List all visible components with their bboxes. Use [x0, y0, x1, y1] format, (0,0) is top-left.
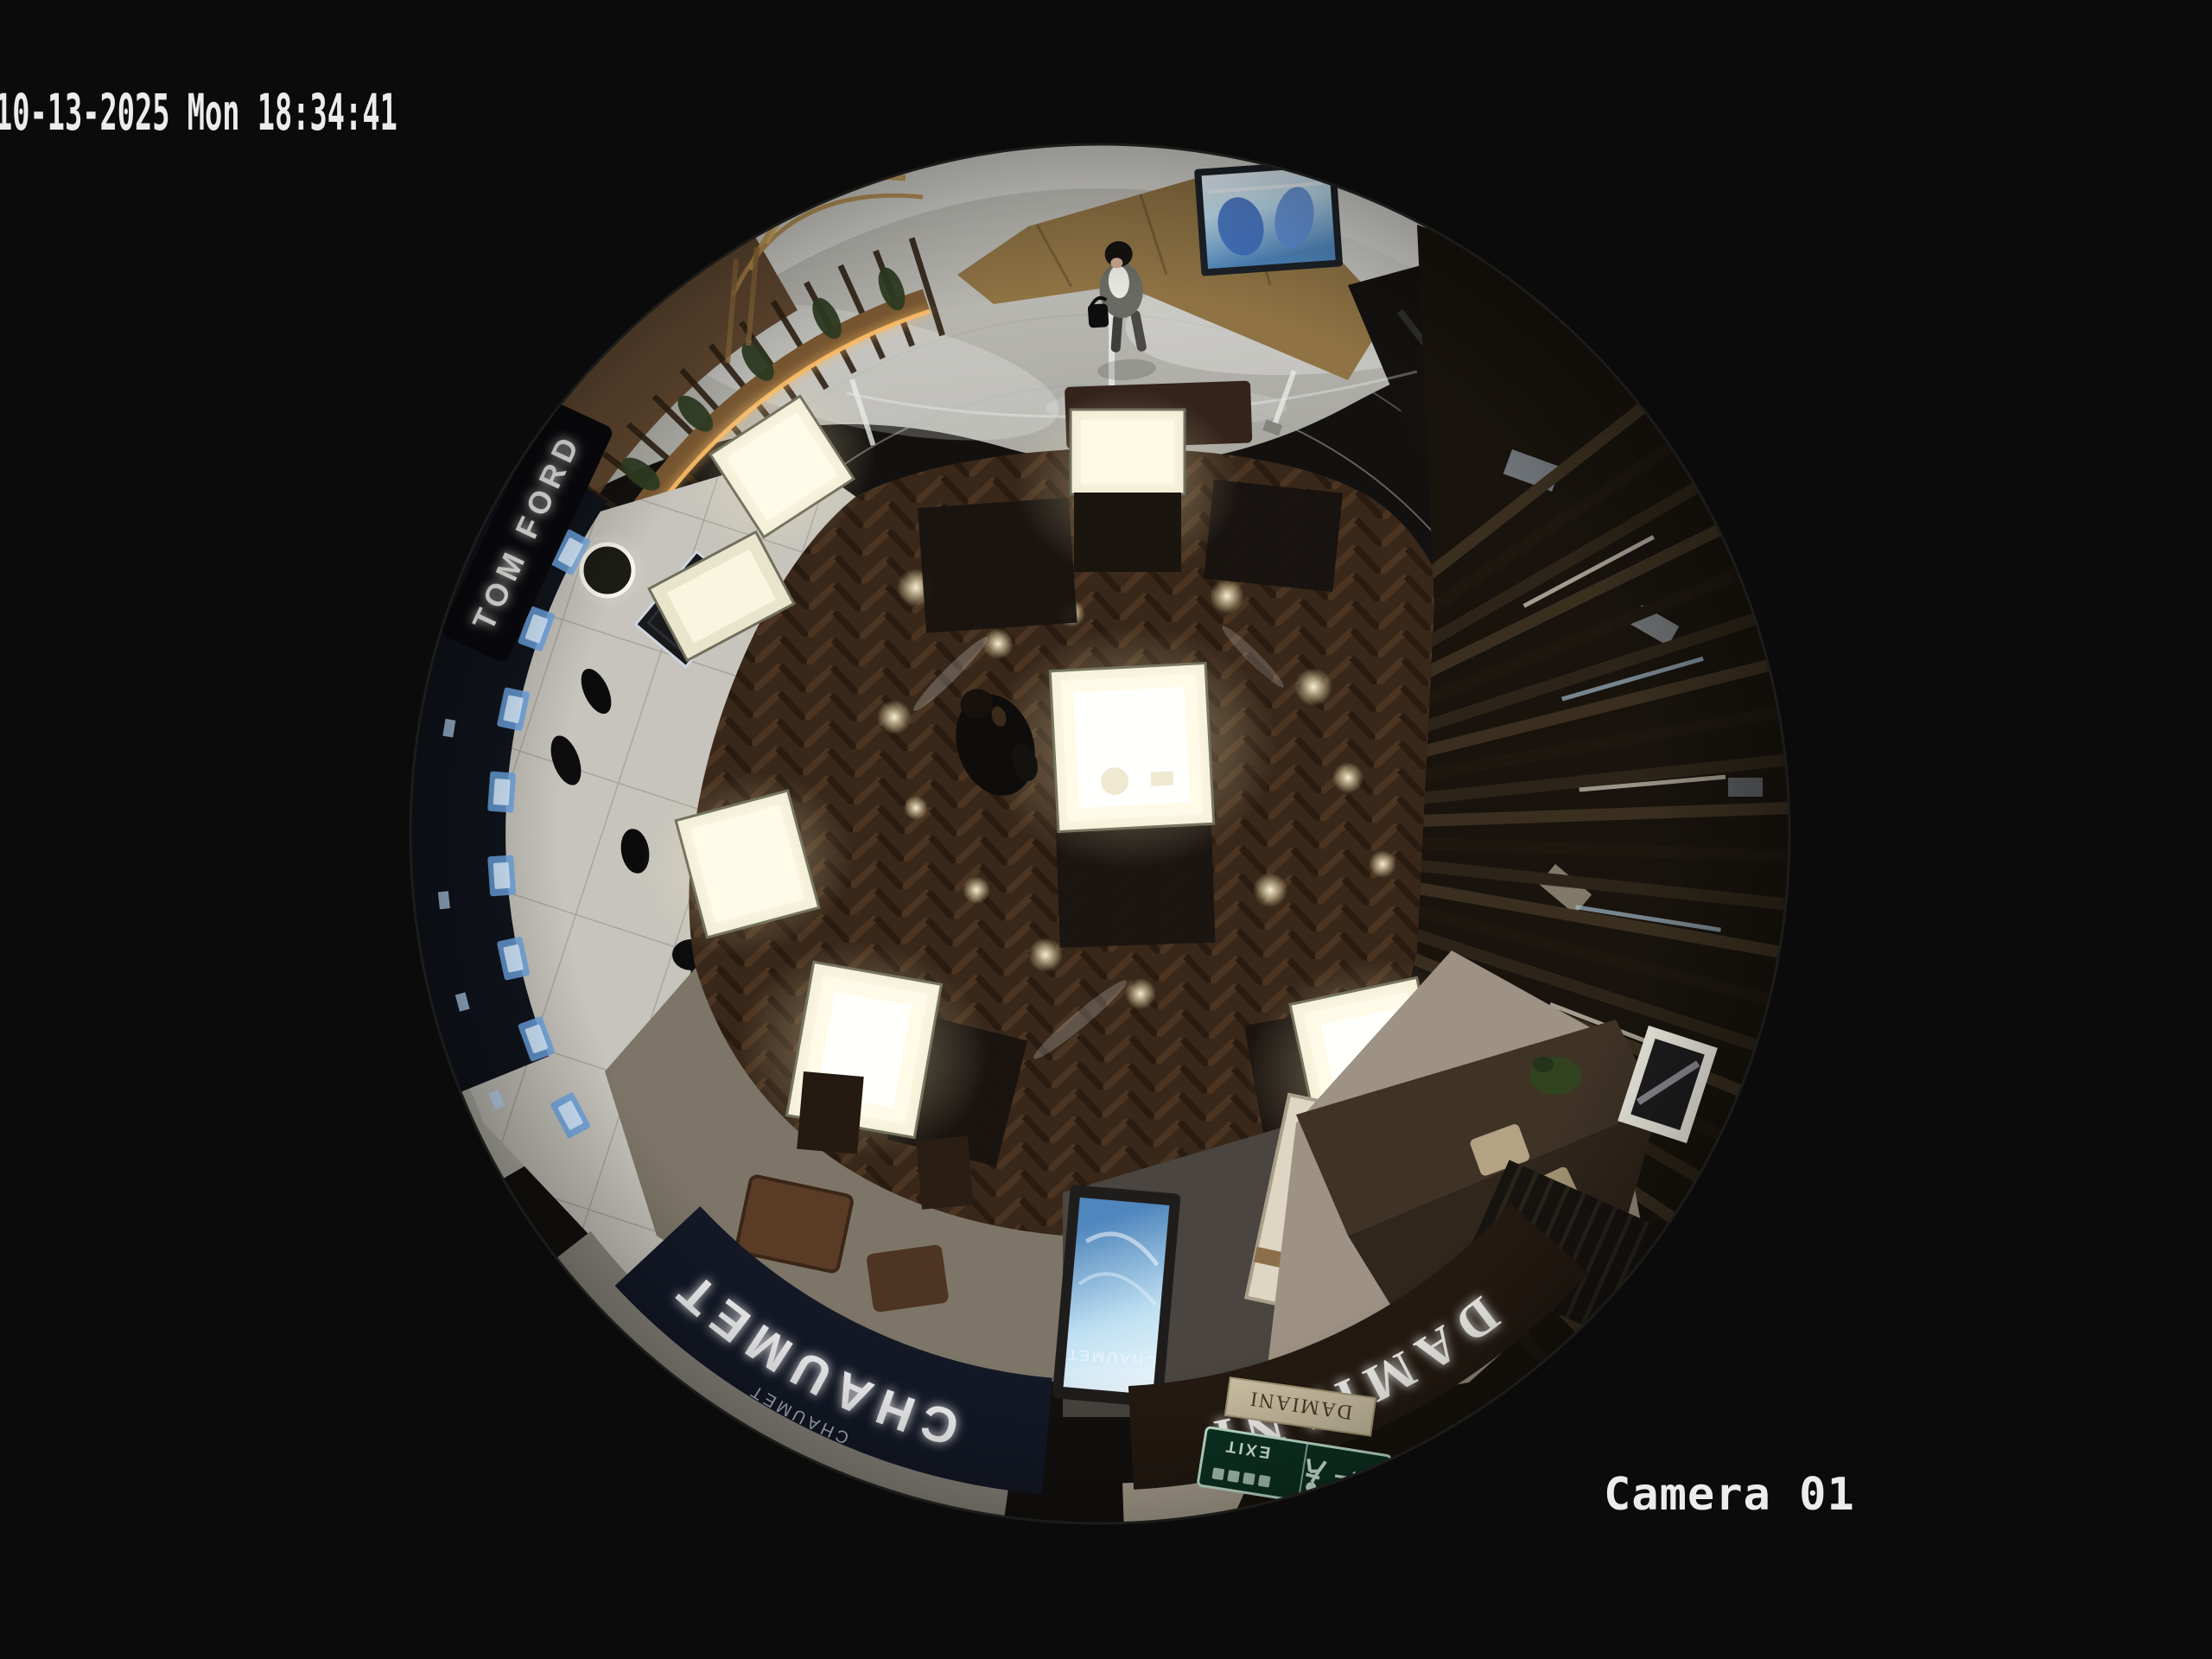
- vignette: [409, 143, 1791, 1525]
- camera-label: Camera 01: [1604, 1469, 1855, 1521]
- fisheye-view: TOM FORD TF: [0, 0, 2212, 1659]
- timestamp-overlay: 10-13-2025 Mon 18:34:41: [0, 83, 397, 142]
- cctv-frame: TOM FORD TF: [0, 0, 2212, 1659]
